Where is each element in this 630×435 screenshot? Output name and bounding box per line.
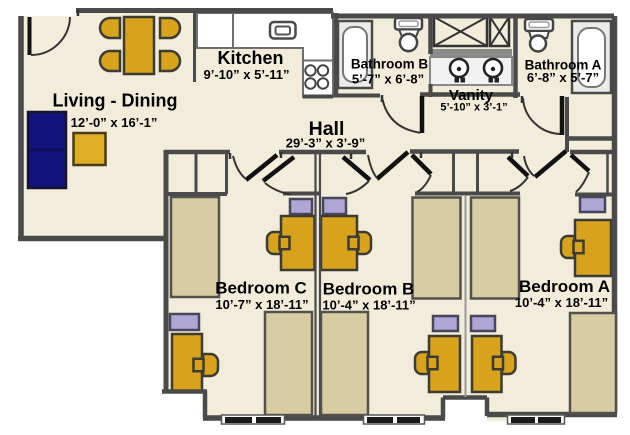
svg-text:Bedroom B: Bedroom B — [323, 280, 415, 299]
svg-text:10’-7” x 18’-11”: 10’-7” x 18’-11” — [215, 297, 308, 312]
svg-text:12’-0” x 16’-1”: 12’-0” x 16’-1” — [71, 115, 158, 130]
svg-text:5’-10” x 3’-1”: 5’-10” x 3’-1” — [440, 102, 507, 114]
svg-text:5’-7” x 6’-8”: 5’-7” x 6’-8” — [352, 72, 424, 87]
svg-text:10’-4” x 18’-11”: 10’-4” x 18’-11” — [515, 295, 608, 310]
svg-text:Bedroom C: Bedroom C — [215, 279, 307, 298]
svg-text:Bathroom B: Bathroom B — [351, 57, 429, 72]
svg-text:9’-10” x 5’-11”: 9’-10” x 5’-11” — [204, 67, 290, 82]
svg-text:Kitchen: Kitchen — [217, 48, 283, 68]
svg-text:29’-3” x 3’-9”: 29’-3” x 3’-9” — [286, 136, 366, 151]
svg-text:6’-8” x 5’-7”: 6’-8” x 5’-7” — [527, 70, 599, 85]
svg-text:10’-4” x 18’-11”: 10’-4” x 18’-11” — [322, 298, 415, 313]
svg-text:Living - Dining: Living - Dining — [53, 91, 178, 111]
svg-text:Bedroom A: Bedroom A — [519, 277, 610, 296]
